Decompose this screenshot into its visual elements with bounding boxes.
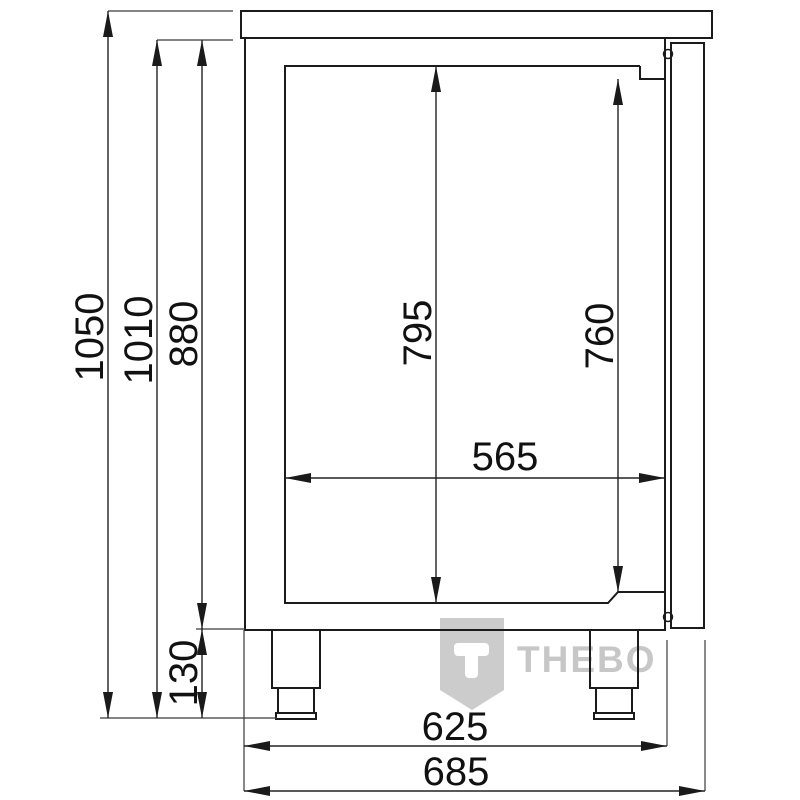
dim-label-inner-depth: 565 (472, 435, 539, 479)
dim-label-base-depth: 625 (422, 705, 489, 749)
dim-label-inner-height-rear: 795 (396, 300, 440, 367)
watermark-brand-text: THEBO (517, 639, 657, 680)
dim-label-cabinet-height: 880 (162, 301, 206, 368)
dim-label-overall-depth: 685 (423, 750, 490, 794)
dim-label-inner-height-front: 760 (578, 303, 622, 370)
cabinet-outline (241, 11, 712, 719)
left-leg-base (276, 713, 316, 719)
dim-label-body-height: 1010 (117, 296, 161, 385)
left-leg-foot (278, 688, 314, 713)
refrigerated-counter-side-view-drawing: THEBO (0, 0, 800, 800)
worktop-panel (241, 11, 712, 38)
thebo-shield-t-stem (465, 643, 478, 678)
dimension-labels: 1050 1010 880 130 795 760 565 625 685 (68, 293, 622, 794)
right-leg-foot (596, 688, 632, 713)
right-leg-base (594, 713, 634, 719)
left-leg-upper (272, 630, 320, 688)
dim-label-leg-height: 130 (162, 640, 206, 707)
thebo-watermark: THEBO (440, 618, 657, 710)
dim-label-overall-height: 1050 (68, 293, 112, 382)
door-panel (671, 43, 704, 628)
technical-drawing-page: THEBO (0, 0, 800, 800)
